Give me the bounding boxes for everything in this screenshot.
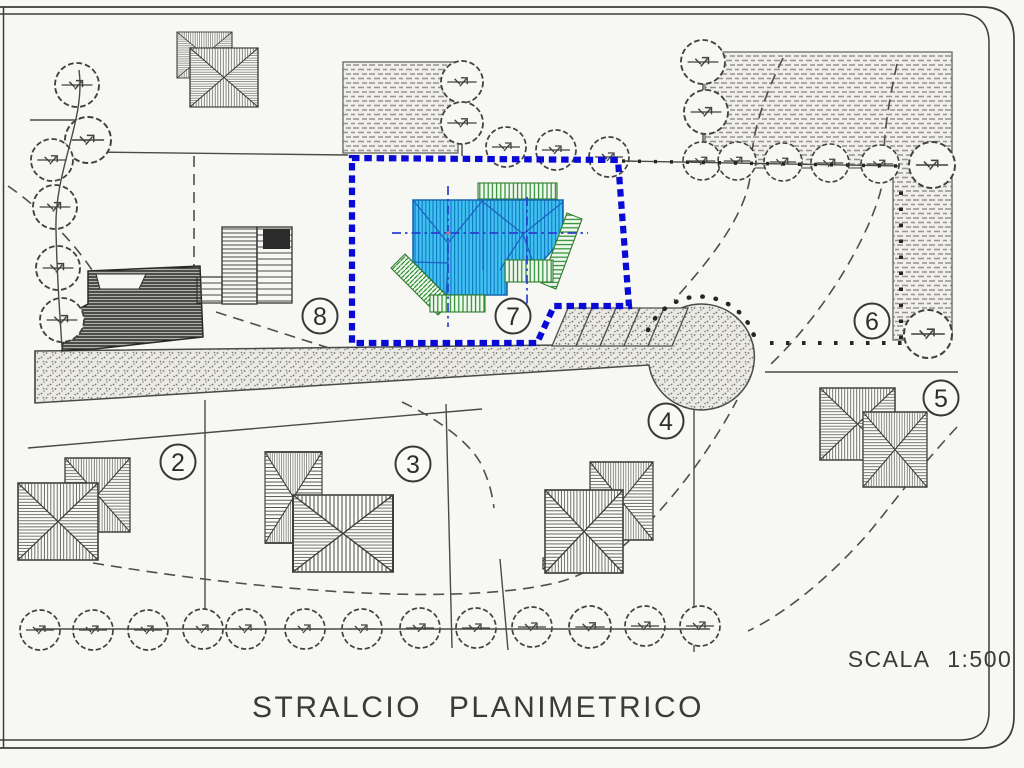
existing-building-notch: [96, 274, 146, 289]
terrace-top: [478, 183, 557, 199]
tree-icon: [589, 137, 629, 177]
lot-label-6: 6: [855, 304, 890, 339]
tree-icon: [764, 143, 802, 181]
tree-icon: [909, 142, 955, 188]
tree-icon: [33, 185, 77, 229]
tree-icon: [681, 40, 725, 84]
existing-buildings-lot-8: [62, 227, 292, 351]
tree-icon: [73, 610, 113, 650]
lot-label-text: 3: [406, 451, 420, 479]
tree-icon: [684, 90, 728, 134]
lot-label-5: 5: [924, 381, 959, 416]
site-plan-canvas: 2 3 4 5 6 7 8 SCALA 1:500 STRALCIO PLANI…: [0, 0, 1024, 768]
axis-marker: [446, 231, 450, 235]
lot-label-text: 2: [171, 449, 185, 477]
lot-label-4: 4: [649, 404, 684, 439]
tree-icon: [20, 610, 60, 650]
lot-label-8: 8: [303, 299, 338, 334]
textured-parcel-top-center: [343, 62, 458, 153]
lot-label-text: 7: [506, 303, 520, 331]
tree-icon: [55, 63, 99, 107]
lot-label-text: 4: [659, 408, 673, 436]
tree-icon: [625, 606, 665, 646]
drawing-title: STRALCIO PLANIMETRICO: [252, 691, 704, 724]
site-plan-svg: 2 3 4 5 6 7 8 SCALA 1:500 STRALCIO PLANI…: [0, 0, 1024, 768]
lot-label-7: 7: [496, 299, 531, 334]
tree-icon: [128, 610, 168, 650]
existing-building-b-left: [222, 227, 257, 304]
house-top-left: [177, 32, 258, 107]
lot-label-2: 2: [161, 445, 196, 480]
existing-building-connector: [197, 277, 222, 303]
tree-icon: [680, 606, 720, 646]
tree-icon: [400, 608, 440, 648]
tree-icon: [441, 102, 483, 144]
terrace-inner: [505, 260, 553, 282]
house-lot-4: [545, 462, 653, 573]
tree-icon: [456, 608, 496, 648]
existing-building-b-dark-block: [263, 229, 290, 249]
scale-label: SCALA 1:500: [848, 646, 1013, 672]
tree-icon: [40, 298, 84, 342]
terrace-south: [430, 295, 485, 312]
lot-label-3: 3: [396, 447, 431, 482]
tree-icon: [569, 606, 611, 648]
house-lot-2: [18, 458, 130, 560]
parking-stalls: [552, 308, 688, 346]
tree-icon: [512, 607, 552, 647]
house-lot-3: [265, 452, 393, 572]
tree-icon: [718, 142, 756, 180]
lot-label-text: 8: [313, 303, 327, 331]
tree-icon: [31, 139, 73, 181]
tree-icon: [536, 130, 576, 170]
textured-parcel-top-right: [705, 52, 952, 340]
tree-icon: [904, 310, 952, 358]
lot-label-text: 6: [865, 308, 879, 336]
tree-icon: [441, 61, 483, 103]
house-lot-5: [820, 388, 927, 487]
lot-label-text: 5: [934, 385, 948, 413]
